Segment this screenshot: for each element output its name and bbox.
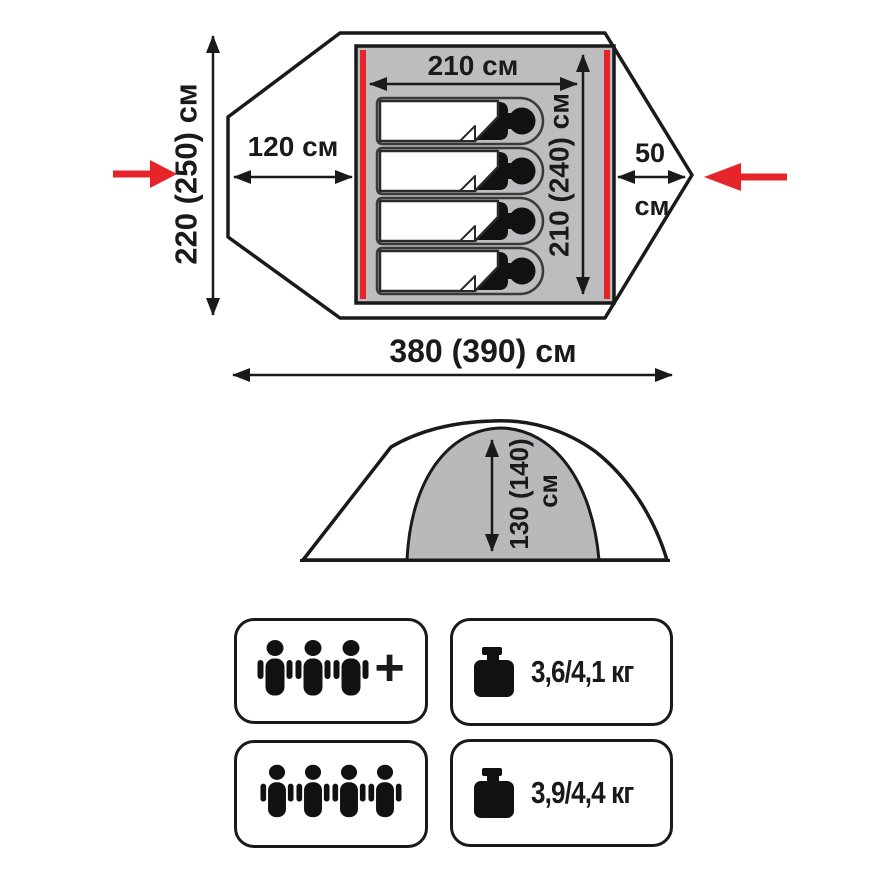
dimension-total-width: 380 (390) см	[233, 333, 672, 375]
weight-box-primary: 3,6/4,1 кг	[450, 618, 673, 726]
blanket-shape	[380, 101, 498, 141]
sleeping-bag	[377, 148, 543, 194]
capacity-box-max	[234, 740, 428, 848]
person-icon-group: +	[257, 640, 404, 702]
blanket-shape	[380, 201, 498, 241]
blanket-shape	[380, 251, 498, 291]
inner-width-label: 210 см	[428, 50, 519, 81]
tent-spec-sheet: 220 (250) см 120 см 210 см 210 (240) см …	[0, 0, 875, 875]
person-head-shape	[509, 108, 536, 135]
person-icon	[257, 640, 293, 702]
inner-depth-label: 210 (240) см	[544, 93, 575, 257]
weight-primary-label: 3,6/4,1 кг	[531, 654, 633, 690]
person-icon	[260, 763, 294, 825]
total-width-label: 380 (390) см	[389, 333, 576, 369]
inner-tent-right-red-edge	[604, 50, 610, 299]
tent-sideview: 130 (140) см	[300, 421, 670, 561]
person-icon-group	[260, 763, 402, 825]
inner-height-unit: см	[533, 474, 563, 508]
weight-max-label: 3,9/4,4 кг	[531, 775, 633, 811]
weight-icon	[471, 767, 517, 819]
inner-height-value: 130 (140)	[504, 438, 534, 549]
person-icon	[295, 640, 331, 702]
person-head-shape	[509, 208, 536, 235]
entrance-arrow-shaft	[740, 174, 787, 181]
dimension-total-depth: 220 (250) см	[169, 36, 214, 315]
tent-diagram: 220 (250) см 120 см 210 см 210 (240) см …	[0, 0, 875, 600]
plus-label: +	[374, 642, 404, 694]
blanket-shape	[380, 151, 498, 191]
person-head-shape	[509, 258, 536, 285]
person-icon	[368, 763, 402, 825]
person-head-shape	[509, 158, 536, 185]
inner-tent-left-red-edge	[360, 50, 366, 299]
weight-box-max: 3,9/4,4 кг	[450, 739, 673, 847]
sleeping-bag	[377, 98, 543, 144]
capacity-box-primary: +	[234, 618, 428, 724]
person-icon	[333, 640, 369, 702]
rear-vestibule-unit: см	[635, 191, 670, 221]
vestibule-depth-label: 120 см	[248, 131, 339, 162]
rear-vestibule-value: 50	[635, 138, 665, 168]
entrance-arrow-head	[704, 163, 741, 191]
weight-icon	[471, 646, 517, 698]
sleeping-bag	[377, 198, 543, 244]
person-icon	[296, 763, 330, 825]
person-icon	[332, 763, 366, 825]
tent-floorplan: 220 (250) см 120 см 210 см 210 (240) см …	[113, 33, 787, 375]
sleeping-bag	[377, 248, 543, 294]
entrance-arrow-left	[113, 160, 177, 188]
entrance-arrow-right	[704, 163, 787, 191]
entrance-arrow-shaft	[113, 171, 152, 178]
